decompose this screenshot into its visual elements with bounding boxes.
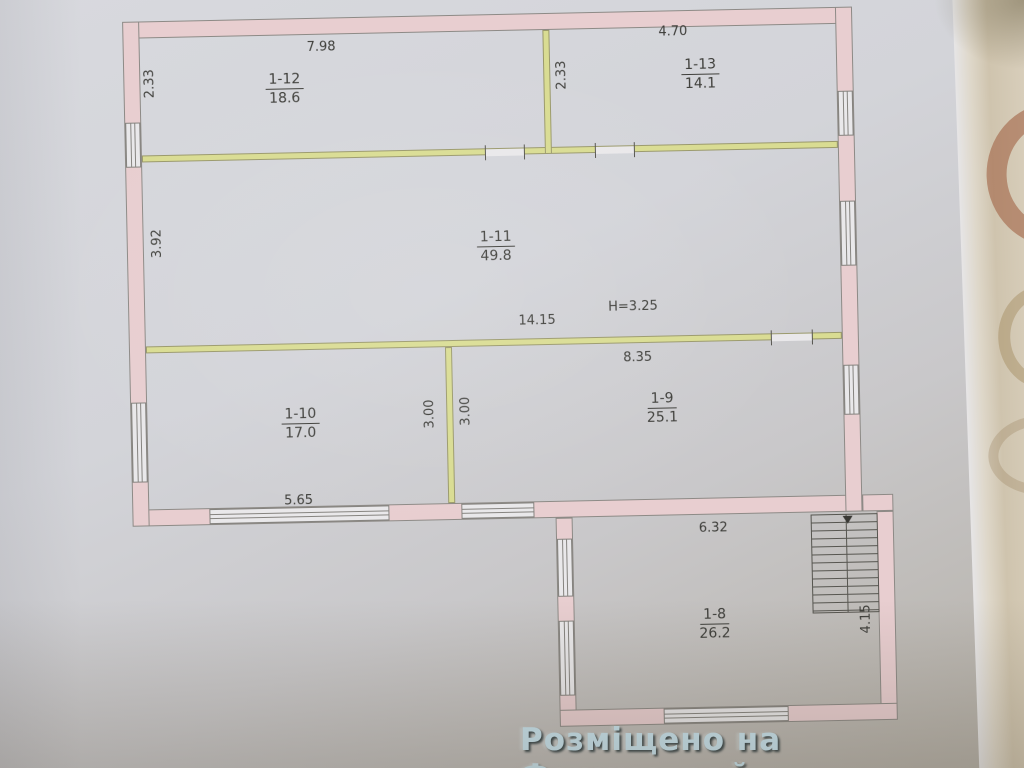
- room-label-1-8: 1-8 26.2: [699, 605, 731, 643]
- door-opening: [595, 146, 635, 154]
- door-opening: [485, 148, 525, 156]
- floor-plan: 1-12 18.6 1-13 14.1 1-11 49.8 1-10 17.0 …: [0, 0, 1024, 768]
- room-label-1-13: 1-13 14.1: [681, 55, 720, 93]
- dim-r8-height: 4.15: [858, 604, 874, 633]
- room-label-1-12: 1-12 18.6: [265, 70, 304, 108]
- window: [840, 201, 856, 266]
- dim-r10-bottom-width: 5.65: [284, 493, 313, 509]
- room-label-1-9: 1-9 25.1: [646, 389, 678, 427]
- dim-top-mid-height: 2.33: [554, 61, 570, 90]
- window: [559, 621, 576, 696]
- dim-top-left-height: 2.33: [142, 69, 158, 98]
- room-id: 1-12: [265, 70, 303, 90]
- door-opening: [771, 333, 813, 341]
- staircase: [811, 513, 880, 613]
- room-id: 1-11: [477, 228, 515, 248]
- window: [125, 122, 141, 167]
- room-id: 1-13: [681, 55, 719, 75]
- photo-of-floor-plan: 1-12 18.6 1-13 14.1 1-11 49.8 1-10 17.0 …: [0, 0, 1024, 768]
- room-id: 1-9: [647, 389, 676, 409]
- window: [131, 402, 148, 482]
- dim-r10-height: 3.00: [422, 399, 438, 428]
- partition-1-10-1-9: [445, 347, 455, 503]
- dim-top-right-width: 4.70: [658, 24, 687, 40]
- dim-hall-width: 14.15: [518, 313, 556, 329]
- dim-r9-width: 8.35: [623, 350, 652, 366]
- room-area: 18.6: [266, 89, 304, 108]
- room-id: 1-8: [700, 605, 729, 625]
- dim-r9-height: 3.00: [458, 397, 474, 426]
- wall-top: [122, 7, 852, 39]
- room-area: 49.8: [477, 247, 515, 266]
- room-area: 17.0: [282, 424, 320, 443]
- staircase-divider: [845, 515, 848, 612]
- room-id: 1-10: [281, 405, 319, 425]
- room-area: 26.2: [699, 624, 731, 643]
- room-area: 14.1: [681, 75, 719, 94]
- dim-ceiling-height: H=3.25: [608, 299, 658, 315]
- dim-mid-left-height: 3.92: [149, 229, 165, 258]
- partition-1-12-1-13: [542, 30, 552, 154]
- room-label-1-11: 1-11 49.8: [477, 228, 516, 266]
- watermark-text: Розміщено на Форумстрой: [520, 722, 1024, 768]
- wall-bottom-extension-stub: [862, 494, 893, 512]
- window: [461, 502, 534, 519]
- dim-r8-width: 6.32: [699, 520, 728, 536]
- annex-wall-right: [877, 511, 898, 720]
- stair-direction-arrow-icon: [843, 516, 853, 524]
- room-area: 25.1: [647, 408, 679, 427]
- window: [843, 365, 859, 415]
- room-label-1-10: 1-10 17.0: [281, 405, 320, 443]
- dim-top-left-width: 7.98: [307, 39, 336, 55]
- window: [557, 539, 573, 597]
- window: [838, 91, 854, 136]
- partition-hall-lower: [146, 332, 842, 354]
